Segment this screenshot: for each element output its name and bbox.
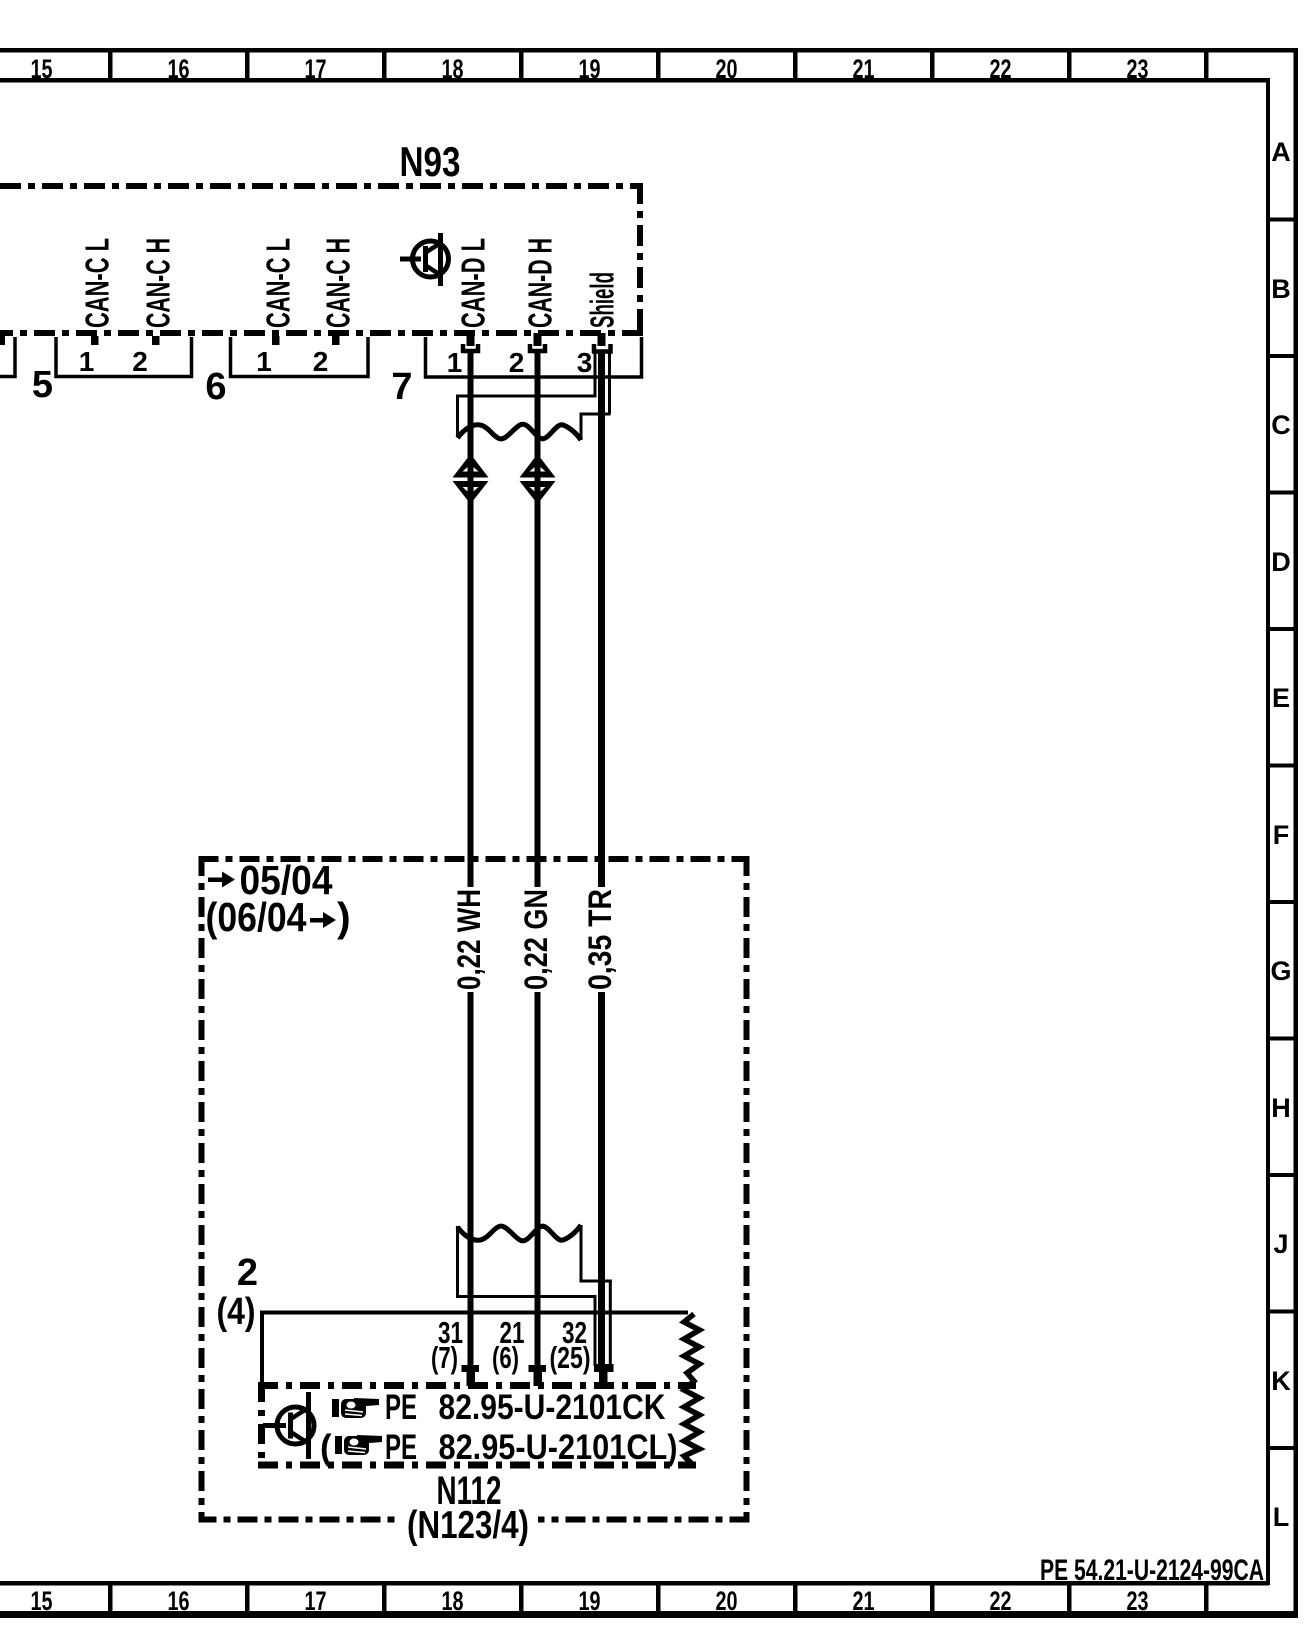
svg-text:H: H [1271, 1093, 1291, 1123]
svg-text:7: 7 [391, 366, 412, 408]
svg-text:15: 15 [31, 1586, 53, 1616]
svg-text:CAN-D L: CAN-D L [455, 238, 492, 328]
svg-text:23: 23 [1127, 1586, 1149, 1616]
svg-text:16: 16 [168, 54, 190, 84]
svg-text:23: 23 [1127, 54, 1149, 84]
svg-text:CAN-C H: CAN-C H [320, 238, 357, 328]
svg-text:0,22 GN: 0,22 GN [518, 889, 554, 990]
svg-text:C: C [1271, 410, 1291, 440]
svg-text:1: 1 [447, 347, 463, 378]
svg-text:6: 6 [205, 366, 226, 408]
svg-text:20: 20 [716, 54, 738, 84]
svg-text:(6): (6) [492, 1340, 519, 1375]
svg-text:CAN-C L: CAN-C L [260, 238, 297, 328]
svg-text:A: A [1271, 137, 1291, 167]
svg-text:PE 54.21-U-2124-99CA: PE 54.21-U-2124-99CA [1040, 1554, 1264, 1587]
svg-text:F: F [1273, 820, 1290, 850]
svg-text:(: ( [320, 1428, 332, 1467]
svg-text:20: 20 [716, 1586, 738, 1616]
svg-text:18: 18 [442, 1586, 464, 1616]
svg-text:PE: PE [385, 1428, 417, 1467]
svg-text:2: 2 [237, 1252, 258, 1294]
svg-text:21: 21 [853, 1586, 875, 1616]
svg-text:22: 22 [990, 54, 1012, 84]
svg-text:): ) [337, 894, 351, 940]
svg-text:L: L [1273, 1502, 1290, 1532]
svg-text:K: K [1271, 1366, 1291, 1396]
svg-text:3: 3 [577, 347, 593, 378]
svg-text:18: 18 [442, 54, 464, 84]
svg-text:21: 21 [853, 54, 875, 84]
svg-text:CAN-D H: CAN-D H [522, 238, 559, 328]
svg-text:PE: PE [385, 1388, 417, 1427]
svg-text:G: G [1270, 956, 1291, 986]
svg-text:N93: N93 [400, 138, 461, 185]
svg-text:15: 15 [31, 54, 53, 84]
svg-text:1: 1 [256, 346, 272, 377]
svg-text:J: J [1273, 1229, 1288, 1259]
svg-text:Shield: Shield [584, 272, 621, 328]
svg-text:19: 19 [579, 1586, 601, 1616]
svg-text:(N123/4): (N123/4) [407, 1504, 529, 1547]
svg-text:D: D [1271, 547, 1291, 577]
svg-text:5: 5 [32, 364, 53, 406]
svg-text:82.95-U-2101CK: 82.95-U-2101CK [439, 1388, 666, 1427]
svg-text:B: B [1271, 274, 1291, 304]
svg-text:19: 19 [579, 54, 601, 84]
svg-text:(4): (4) [217, 1291, 256, 1333]
svg-text:(06/04: (06/04 [206, 894, 307, 940]
svg-text:17: 17 [305, 54, 327, 84]
svg-text:2: 2 [509, 347, 525, 378]
svg-text:CAN-C H: CAN-C H [140, 238, 177, 328]
svg-text:E: E [1272, 683, 1290, 713]
svg-text:0,35 TR: 0,35 TR [582, 889, 618, 990]
svg-text:17: 17 [305, 1586, 327, 1616]
svg-text:82.95-U-2101CL): 82.95-U-2101CL) [439, 1428, 678, 1467]
svg-text:(7): (7) [431, 1340, 458, 1375]
svg-text:22: 22 [990, 1586, 1012, 1616]
svg-text:16: 16 [168, 1586, 190, 1616]
svg-text:2: 2 [132, 346, 148, 377]
svg-text:2: 2 [313, 346, 329, 377]
svg-text:0,22 WH: 0,22 WH [451, 889, 487, 990]
svg-text:CAN-C L: CAN-C L [79, 238, 116, 328]
svg-text:1: 1 [79, 346, 95, 377]
svg-text:(25): (25) [550, 1340, 591, 1375]
